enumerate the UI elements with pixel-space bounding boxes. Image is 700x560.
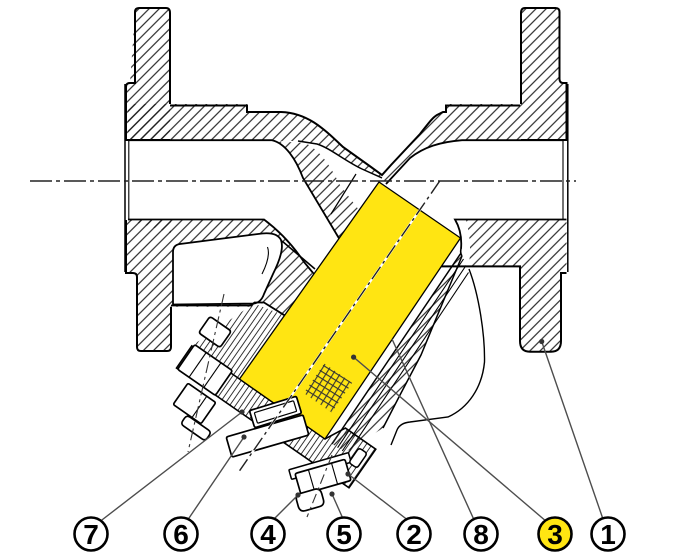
- svg-text:2: 2: [406, 519, 422, 550]
- svg-text:3: 3: [547, 519, 563, 550]
- svg-text:7: 7: [83, 519, 99, 550]
- svg-text:8: 8: [473, 519, 489, 550]
- svg-text:4: 4: [260, 519, 276, 550]
- svg-text:6: 6: [173, 519, 189, 550]
- svg-text:5: 5: [336, 519, 352, 550]
- svg-text:1: 1: [600, 519, 616, 550]
